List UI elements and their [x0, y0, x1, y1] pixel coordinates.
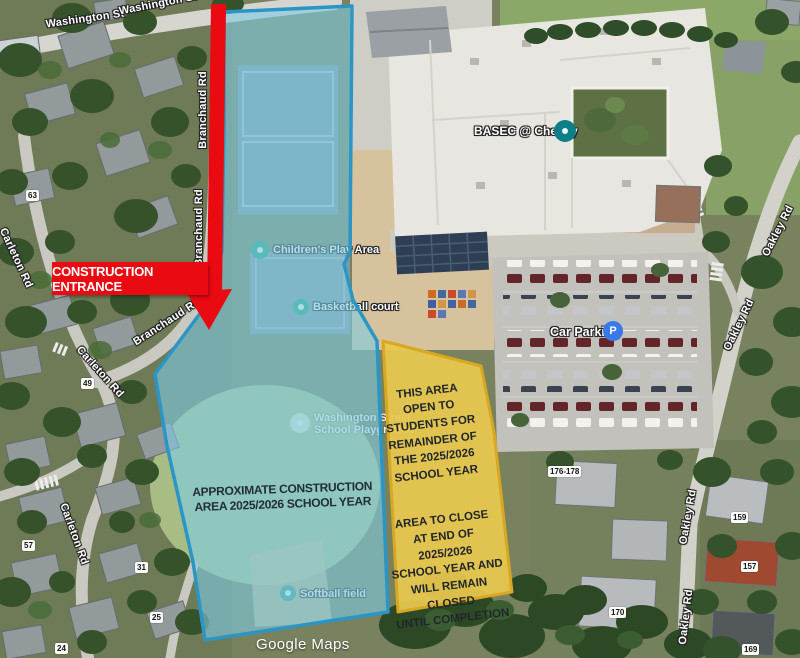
map-viewport[interactable]: Washington St Washington St Branchaud Rd…: [0, 0, 800, 658]
open-area-overlay: [383, 341, 512, 612]
construction-area-overlay: [155, 6, 388, 640]
annotation-overlays: [0, 0, 800, 658]
